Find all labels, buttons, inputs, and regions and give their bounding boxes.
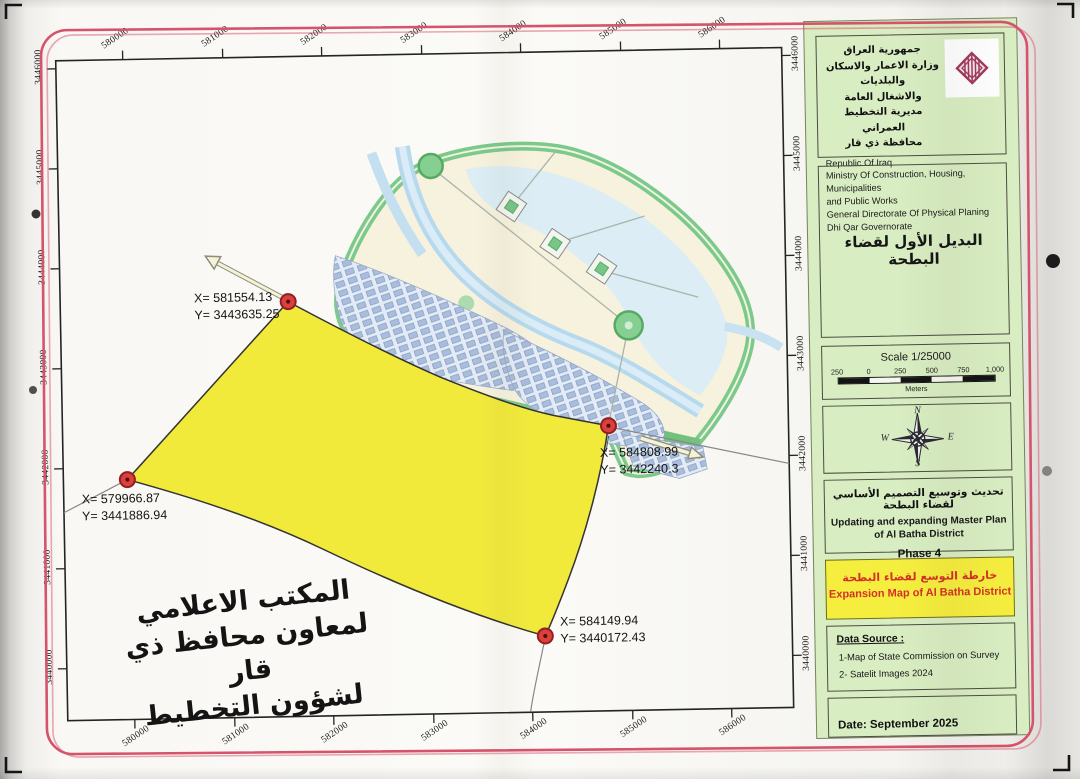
legend-panel: جمهورية العراق وزارة الاعمار والاسكان وا… [803,17,1030,739]
scale-tick: 750 [957,365,969,374]
grid-label-y: 3446000 [33,37,44,97]
data-source-box: Data Source : 1-Map of State Commission … [826,622,1016,691]
master-plan-english: Updating and expanding Master Plan of Al… [825,513,1012,542]
watermark-stamp: المكتب الاعلامي لمعاون محافظ ذي قار لشؤو… [114,570,383,737]
grid-label-y: 3446000 [790,23,801,83]
ministry-emblem-patch [944,39,999,98]
scale-box: Scale 1/25000 250 0 250 500 750 1,000 [821,342,1011,399]
compass-east-label: E [948,431,954,442]
scale-tick: 500 [926,366,938,375]
ministry-emblem-icon [949,43,996,94]
grid-label-y: 3441000 [799,523,810,583]
alternative-title-box: البديل الأول لقضاء البطحة [818,162,1010,337]
alternative-title: البديل الأول لقضاء البطحة [820,230,1008,269]
scale-title: Scale 1/25000 [822,349,1009,364]
scale-unit: Meters [837,383,995,395]
expansion-map-title-box: خارطة التوسع لقضاء البطحة Expansion Map … [825,556,1015,619]
scale-tick: 0 [867,367,871,376]
compass-box: N E S W [822,402,1012,473]
arabic-header-line: مديرية التخطيط العمراني [824,104,944,137]
grid-label-y: 3443000 [39,337,50,397]
corner-point-label: X= 584149.94 Y= 3440172.43 [560,612,646,648]
grid-label-y: 3444000 [37,237,48,297]
expansion-arabic: خارطة التوسع لقضاء البطحة [826,568,1013,584]
master-plan-arabic: تحديث وتوسيع التصميم الأساسي لقضاء البطح… [825,485,1012,512]
arabic-header-line: وزارة الاعمار والاسكان والبلديات [823,57,943,90]
roundabout-park [418,154,442,178]
compass-west-label: W [881,433,890,444]
date-box: Date: September 2025 [828,694,1018,737]
corner-point-label: X= 584808.99 Y= 3442240.3 [600,443,679,479]
coord-x: X= 581554.13 [194,289,279,308]
header-box: جمهورية العراق وزارة الاعمار والاسكان وا… [815,32,1006,157]
date-label: Date: September 2025 [838,717,958,731]
data-source-item: 2- Satelit Images 2024 [828,659,1015,679]
scale-tick: 250 [894,366,906,375]
expansion-english: Expansion Map of Al Batha District [827,585,1014,600]
corner-point-label: X= 581554.13 Y= 3443635.25 [194,289,280,325]
document-content: 580000 581000 582000 583000 584000 58500… [0,0,1080,779]
scale-bar: 250 0 250 500 750 1,000 Meters [837,365,995,395]
grid-label-y: 3441000 [42,537,53,597]
grid-label-y: 3443000 [796,323,807,383]
coord-y: Y= 3442240.3 [600,461,679,480]
master-plan-title-box: تحديث وتوسيع التصميم الأساسي لقضاء البطح… [824,476,1014,553]
coord-x: X= 579966.87 [82,490,167,509]
grid-label-y: 3440000 [801,623,812,683]
grid-label-y: 3442000 [41,437,52,497]
scale-tick: 250 [831,367,843,376]
corner-point-label: X= 579966.87 Y= 3441886.94 [82,490,168,526]
grid-label-y: 3440000 [44,637,55,697]
grid-label-y: 3445000 [792,123,803,183]
compass-north-label: N [914,405,921,416]
grid-label-y: 3445000 [35,137,46,197]
coord-x: X= 584149.94 [560,612,645,631]
coord-y: Y= 3441886.94 [82,507,167,526]
coord-y: Y= 3440172.43 [560,629,645,648]
scale-tick: 1,000 [986,364,1004,373]
compass-south-label: S [915,458,920,469]
coord-y: Y= 3443635.25 [194,306,279,325]
grid-label-y: 3444000 [794,223,805,283]
photo-of-map-document: 580000 581000 582000 583000 584000 58500… [0,0,1080,779]
grid-label-y: 3442000 [797,423,808,483]
coord-x: X= 584808.99 [600,443,679,462]
data-source-item: 1-Map of State Commission on Survey [828,642,1015,662]
